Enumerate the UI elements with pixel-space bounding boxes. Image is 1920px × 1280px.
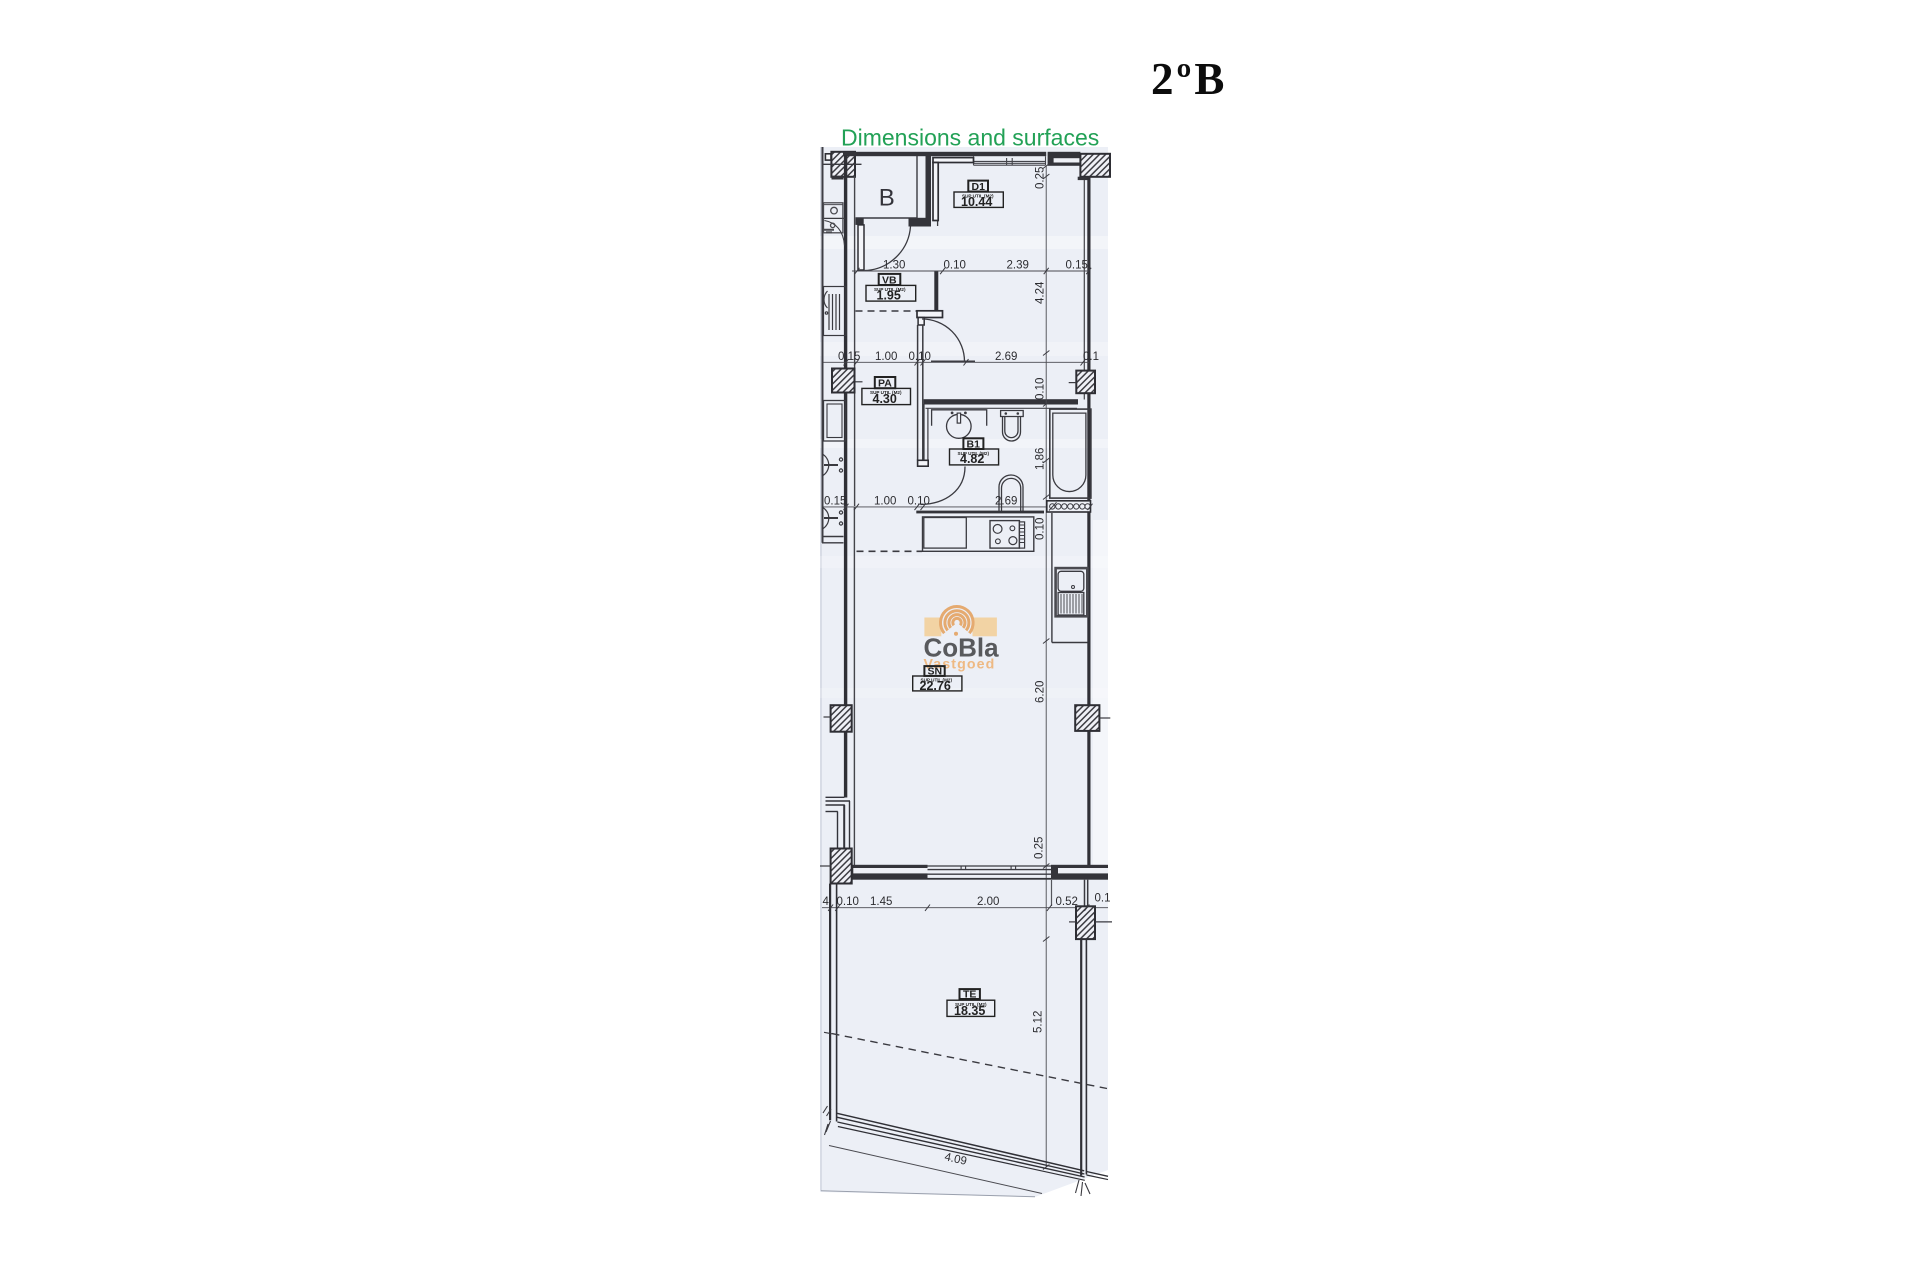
svg-text:2.39: 2.39 xyxy=(1007,259,1029,271)
svg-text:4: 4 xyxy=(823,896,830,908)
svg-text:2.69: 2.69 xyxy=(995,351,1017,363)
svg-text:0.10: 0.10 xyxy=(909,351,931,363)
svg-text:0.10: 0.10 xyxy=(1035,378,1047,400)
svg-text:2.69: 2.69 xyxy=(995,495,1017,507)
svg-text:VB: VB xyxy=(882,274,897,286)
svg-text:10.44: 10.44 xyxy=(961,195,992,209)
svg-text:4.82: 4.82 xyxy=(960,452,984,466)
svg-text:18.35: 18.35 xyxy=(954,1004,985,1018)
svg-text:5.12: 5.12 xyxy=(1033,1011,1045,1033)
svg-text:0.1: 0.1 xyxy=(1095,893,1111,905)
svg-text:4.24: 4.24 xyxy=(1035,281,1047,304)
svg-text:B: B xyxy=(879,185,895,212)
svg-text:0.15: 0.15 xyxy=(1066,259,1088,271)
svg-text:Dimensions and surfaces: Dimensions and surfaces xyxy=(841,125,1099,151)
svg-text:1.00: 1.00 xyxy=(874,495,896,507)
svg-text:1.86: 1.86 xyxy=(1035,448,1047,470)
svg-text:D1: D1 xyxy=(972,181,986,193)
svg-text:0.52: 0.52 xyxy=(1056,896,1078,908)
svg-text:2ºB: 2ºB xyxy=(1151,54,1227,104)
svg-text:1.00: 1.00 xyxy=(875,351,897,363)
svg-text:0.15: 0.15 xyxy=(824,495,846,507)
svg-text:22.76: 22.76 xyxy=(920,679,951,693)
svg-text:0.10: 0.10 xyxy=(944,259,966,271)
svg-text:0.10: 0.10 xyxy=(1035,518,1047,540)
svg-text:1.30: 1.30 xyxy=(883,259,905,271)
svg-text:PA: PA xyxy=(878,377,892,389)
svg-text:1.95: 1.95 xyxy=(877,289,901,303)
svg-text:6.20: 6.20 xyxy=(1035,681,1047,703)
svg-text:0.25: 0.25 xyxy=(1034,837,1046,859)
svg-text:4.30: 4.30 xyxy=(873,392,897,406)
svg-text:1.45: 1.45 xyxy=(870,896,892,908)
svg-text:0.1: 0.1 xyxy=(1083,351,1099,363)
svg-text:0.10: 0.10 xyxy=(908,495,930,507)
svg-text:0.10: 0.10 xyxy=(837,896,859,908)
svg-text:2.00: 2.00 xyxy=(977,896,999,908)
svg-text:TE: TE xyxy=(963,989,976,1001)
